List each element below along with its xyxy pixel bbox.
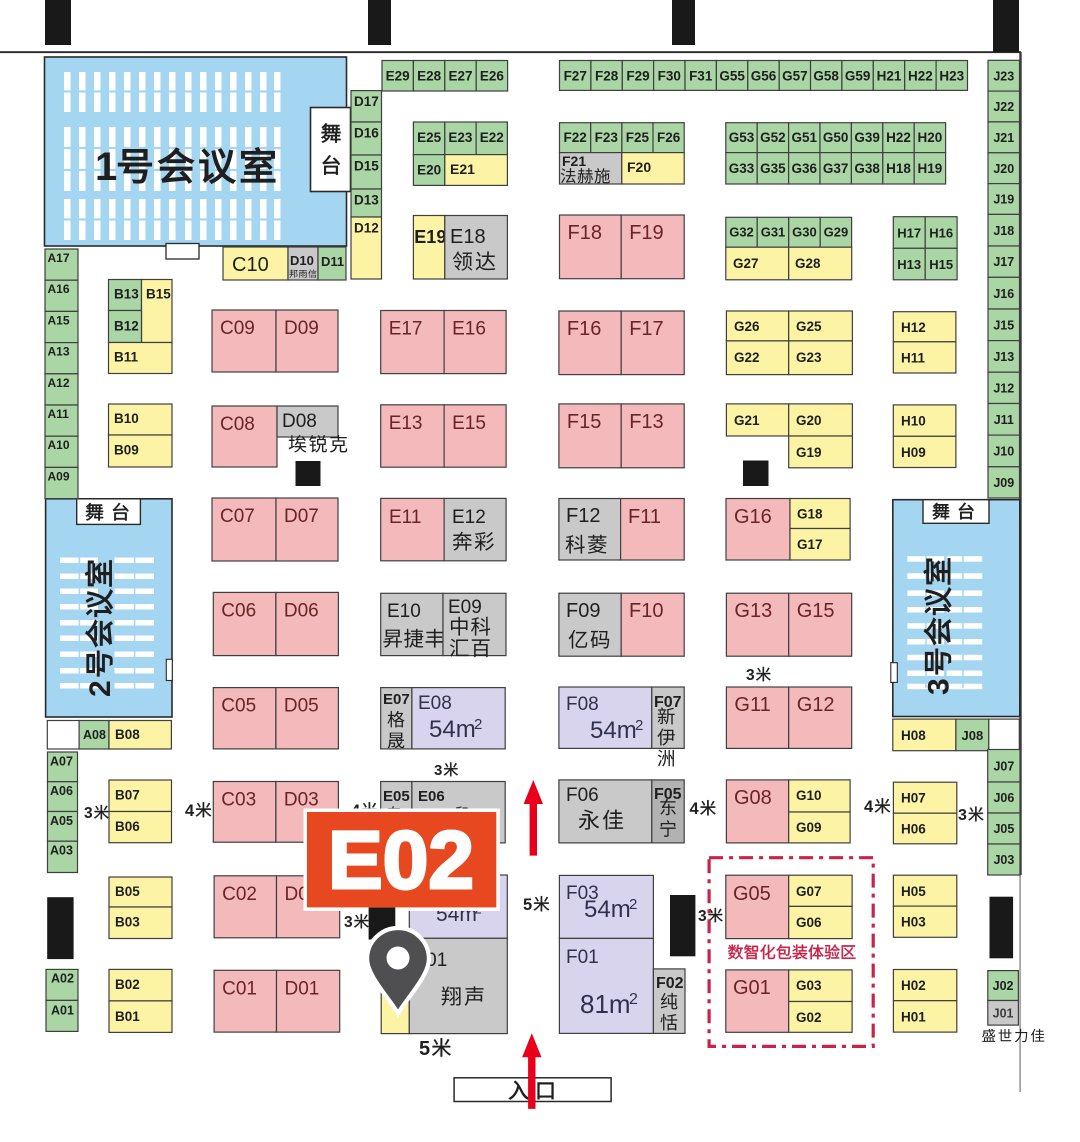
svg-text:H18: H18	[886, 161, 911, 176]
svg-text:C07: C07	[220, 506, 255, 527]
svg-text:F27: F27	[564, 69, 587, 84]
svg-text:C08: C08	[220, 414, 255, 435]
svg-text:H05: H05	[901, 884, 926, 899]
svg-text:E19: E19	[414, 227, 446, 247]
svg-text:F05: F05	[654, 786, 682, 803]
svg-text:G03: G03	[796, 978, 822, 993]
svg-text:F26: F26	[657, 130, 681, 145]
svg-text:G19: G19	[796, 445, 822, 460]
svg-text:2: 2	[629, 896, 637, 913]
svg-text:2: 2	[629, 991, 638, 1008]
svg-text:G53: G53	[729, 130, 755, 145]
svg-text:G32: G32	[729, 225, 754, 240]
svg-text:J02: J02	[993, 979, 1014, 993]
svg-text:54m: 54m	[429, 716, 476, 743]
svg-text:F06: F06	[566, 785, 599, 806]
svg-text:G59: G59	[845, 69, 871, 84]
svg-text:E23: E23	[448, 130, 473, 145]
svg-text:C06: C06	[221, 600, 256, 621]
svg-text:J09: J09	[993, 476, 1014, 490]
svg-text:A01: A01	[51, 1003, 74, 1017]
svg-text:A05: A05	[50, 814, 73, 828]
svg-text:J05: J05	[993, 822, 1014, 836]
svg-text:A16: A16	[48, 282, 70, 296]
svg-text:5: 5	[419, 1038, 430, 1060]
svg-text:G30: G30	[792, 225, 817, 240]
svg-text:G17: G17	[797, 537, 823, 552]
svg-text:F15: F15	[567, 411, 601, 433]
svg-text:G16: G16	[734, 506, 772, 528]
svg-text:F18: F18	[568, 222, 602, 244]
svg-text:4: 4	[864, 798, 874, 816]
svg-text:E12: E12	[452, 507, 486, 528]
svg-text:F30: F30	[658, 69, 681, 84]
svg-text:G20: G20	[796, 413, 822, 428]
svg-text:E09: E09	[448, 597, 482, 618]
svg-text:H19: H19	[918, 161, 943, 176]
svg-text:E15: E15	[452, 413, 486, 434]
svg-text:54m: 54m	[590, 717, 637, 744]
svg-text:4: 4	[185, 802, 195, 820]
svg-text:F01: F01	[566, 947, 599, 968]
svg-text:H02: H02	[901, 978, 926, 993]
svg-text:C05: C05	[221, 696, 256, 717]
svg-text:A17: A17	[48, 251, 70, 265]
svg-text:G23: G23	[796, 350, 822, 365]
svg-text:G29: G29	[824, 225, 849, 240]
svg-text:F28: F28	[595, 69, 619, 84]
svg-text:G15: G15	[797, 600, 835, 622]
svg-text:J16: J16	[993, 287, 1014, 301]
svg-text:H15: H15	[929, 257, 953, 272]
svg-text:G09: G09	[796, 820, 822, 835]
svg-text:G58: G58	[813, 69, 839, 84]
svg-text:5: 5	[523, 896, 532, 914]
svg-text:G13: G13	[734, 600, 772, 622]
svg-text:D17: D17	[354, 94, 379, 109]
svg-text:D08: D08	[282, 411, 317, 432]
svg-text:A10: A10	[48, 438, 70, 452]
svg-text:A13: A13	[48, 345, 70, 359]
svg-text:G07: G07	[796, 884, 822, 899]
svg-text:E08: E08	[418, 693, 452, 714]
svg-text:D12: D12	[354, 221, 379, 236]
svg-text:1: 1	[95, 145, 117, 189]
svg-text:H23: H23	[939, 69, 964, 84]
svg-text:B01: B01	[115, 1009, 140, 1024]
svg-text:E05: E05	[383, 788, 410, 805]
svg-text:H12: H12	[901, 320, 926, 335]
svg-text:E26: E26	[480, 69, 505, 84]
svg-text:E16: E16	[452, 319, 486, 340]
svg-text:A02: A02	[51, 971, 74, 985]
svg-text:F19: F19	[629, 222, 663, 244]
svg-text:G10: G10	[796, 788, 822, 803]
svg-text:H20: H20	[918, 130, 943, 145]
svg-text:H22: H22	[908, 69, 933, 84]
svg-text:A07: A07	[50, 755, 73, 769]
svg-text:H21: H21	[877, 69, 902, 84]
svg-text:G25: G25	[796, 319, 822, 334]
svg-text:H10: H10	[901, 414, 926, 429]
svg-text:D05: D05	[284, 696, 319, 717]
svg-text:F09: F09	[566, 600, 600, 622]
svg-text:G51: G51	[792, 130, 818, 145]
svg-text:H09: H09	[901, 445, 926, 460]
svg-text:H22: H22	[886, 130, 911, 145]
svg-text:81m: 81m	[580, 989, 631, 1019]
svg-text:J07: J07	[993, 759, 1014, 773]
svg-text:D10: D10	[290, 253, 314, 268]
svg-text:F12: F12	[566, 505, 600, 527]
svg-text:3: 3	[344, 914, 353, 931]
svg-text:E29: E29	[386, 69, 410, 84]
svg-text:D15: D15	[354, 159, 379, 174]
svg-text:3: 3	[84, 805, 93, 822]
svg-text:B13: B13	[114, 287, 139, 302]
svg-text:B05: B05	[115, 884, 140, 899]
svg-text:J11: J11	[994, 413, 1014, 427]
svg-text:J23: J23	[993, 69, 1014, 83]
svg-text:G52: G52	[760, 130, 786, 145]
svg-text:J15: J15	[993, 318, 1014, 332]
svg-text:J18: J18	[993, 224, 1014, 238]
svg-text:D07: D07	[284, 506, 319, 527]
svg-text:F25: F25	[626, 130, 650, 145]
svg-text:F02: F02	[656, 975, 684, 992]
svg-text:F16: F16	[567, 318, 601, 340]
svg-text:D03: D03	[284, 790, 319, 811]
svg-text:B08: B08	[115, 727, 140, 742]
svg-text:G31: G31	[761, 225, 786, 240]
svg-text:A03: A03	[50, 844, 73, 858]
svg-text:H03: H03	[901, 915, 926, 930]
svg-text:F17: F17	[629, 318, 663, 340]
svg-text:A15: A15	[48, 313, 70, 327]
svg-text:D11: D11	[321, 254, 344, 269]
svg-text:3: 3	[958, 807, 967, 824]
svg-text:E17: E17	[389, 319, 423, 340]
svg-text:F23: F23	[595, 130, 619, 145]
svg-text:G37: G37	[823, 161, 849, 176]
svg-text:2: 2	[84, 680, 117, 697]
svg-text:3: 3	[698, 908, 707, 925]
svg-text:G27: G27	[733, 256, 759, 271]
svg-text:H01: H01	[901, 1010, 926, 1025]
svg-text:G36: G36	[792, 161, 818, 176]
svg-text:G50: G50	[823, 130, 849, 145]
svg-text:B10: B10	[114, 411, 139, 426]
svg-text:G39: G39	[854, 130, 880, 145]
svg-text:F13: F13	[629, 411, 663, 433]
svg-text:F07: F07	[654, 694, 682, 711]
svg-text:D09: D09	[284, 318, 319, 339]
svg-text:E21: E21	[450, 161, 475, 177]
svg-text:J13: J13	[993, 350, 1014, 364]
svg-text:H07: H07	[901, 791, 926, 806]
svg-text:A11: A11	[48, 407, 70, 421]
svg-text:F31: F31	[689, 69, 713, 84]
svg-text:B12: B12	[114, 319, 139, 334]
svg-text:J17: J17	[993, 255, 1014, 269]
svg-text:E07: E07	[383, 691, 410, 708]
svg-text:G08: G08	[734, 787, 772, 809]
svg-text:C01: C01	[222, 978, 257, 999]
svg-text:J19: J19	[993, 193, 1014, 207]
svg-text:G57: G57	[782, 69, 808, 84]
svg-text:A06: A06	[50, 784, 73, 798]
svg-text:G22: G22	[734, 350, 760, 365]
svg-text:B07: B07	[115, 788, 140, 803]
svg-text:C03: C03	[221, 790, 256, 811]
svg-text:J01: J01	[993, 1007, 1014, 1021]
svg-text:F29: F29	[626, 69, 649, 84]
svg-text:4: 4	[690, 800, 700, 818]
svg-text:G35: G35	[760, 161, 786, 176]
svg-text:F10: F10	[629, 600, 663, 622]
svg-text:H08: H08	[901, 728, 926, 743]
svg-text:F22: F22	[563, 130, 586, 145]
svg-text:D01: D01	[285, 978, 320, 999]
svg-text:B02: B02	[115, 977, 140, 992]
svg-text:B11: B11	[114, 350, 139, 365]
svg-text:H13: H13	[897, 257, 921, 272]
svg-text:E02: E02	[328, 815, 474, 906]
svg-text:D06: D06	[284, 600, 319, 621]
svg-text:J08: J08	[962, 728, 984, 743]
svg-text:E22: E22	[480, 130, 504, 145]
svg-text:E27: E27	[448, 69, 472, 84]
svg-text:J10: J10	[993, 445, 1014, 459]
svg-text:3: 3	[746, 667, 755, 684]
svg-text:G11: G11	[734, 694, 770, 716]
svg-text:F11: F11	[628, 506, 661, 528]
svg-text:G05: G05	[733, 883, 771, 905]
svg-text:J03: J03	[993, 853, 1014, 867]
svg-text:E11: E11	[389, 507, 421, 528]
svg-text:B06: B06	[115, 819, 140, 834]
svg-text:E13: E13	[389, 413, 423, 434]
svg-text:E28: E28	[417, 69, 442, 84]
svg-text:E18: E18	[450, 226, 486, 248]
svg-text:H17: H17	[897, 226, 921, 241]
svg-text:J21: J21	[993, 131, 1014, 145]
svg-text:G26: G26	[734, 319, 760, 334]
svg-text:G38: G38	[854, 161, 880, 176]
svg-text:G21: G21	[734, 413, 760, 428]
svg-text:G28: G28	[795, 256, 821, 271]
svg-text:G18: G18	[797, 507, 823, 522]
svg-text:B09: B09	[114, 443, 139, 458]
svg-text:J20: J20	[993, 162, 1014, 176]
svg-text:C10: C10	[232, 254, 269, 276]
svg-text:G56: G56	[751, 69, 777, 84]
svg-text:B15: B15	[146, 287, 171, 302]
svg-text:B03: B03	[115, 915, 140, 930]
svg-text:A08: A08	[83, 728, 106, 742]
svg-text:G33: G33	[729, 161, 755, 176]
svg-text:F08: F08	[566, 694, 599, 715]
svg-text:G55: G55	[719, 69, 745, 84]
svg-text:54m: 54m	[584, 896, 631, 923]
svg-text:E06: E06	[418, 788, 445, 805]
svg-text:3: 3	[923, 678, 956, 695]
svg-text:3: 3	[434, 762, 442, 779]
svg-text:C09: C09	[220, 318, 255, 339]
svg-text:F21: F21	[562, 153, 586, 169]
svg-text:G12: G12	[797, 694, 835, 716]
svg-text:E25: E25	[417, 130, 442, 145]
svg-text:H16: H16	[929, 226, 953, 241]
svg-text:A09: A09	[48, 469, 70, 483]
svg-text:H06: H06	[901, 822, 926, 837]
svg-text:C02: C02	[222, 884, 257, 905]
svg-text:D13: D13	[354, 193, 379, 208]
svg-text:G01: G01	[733, 977, 771, 999]
svg-text:E20: E20	[417, 163, 441, 178]
svg-text:J12: J12	[993, 382, 1014, 396]
svg-text:A12: A12	[48, 376, 70, 390]
svg-text:D16: D16	[354, 126, 379, 141]
svg-text:G02: G02	[796, 1010, 822, 1025]
svg-text:J22: J22	[993, 100, 1014, 114]
svg-text:2: 2	[635, 717, 643, 734]
svg-text:F20: F20	[627, 159, 651, 175]
svg-text:G06: G06	[796, 915, 822, 930]
svg-text:2: 2	[474, 716, 482, 733]
svg-text:H11: H11	[901, 351, 926, 366]
svg-text:E10: E10	[387, 601, 421, 622]
svg-text:J06: J06	[993, 791, 1014, 805]
